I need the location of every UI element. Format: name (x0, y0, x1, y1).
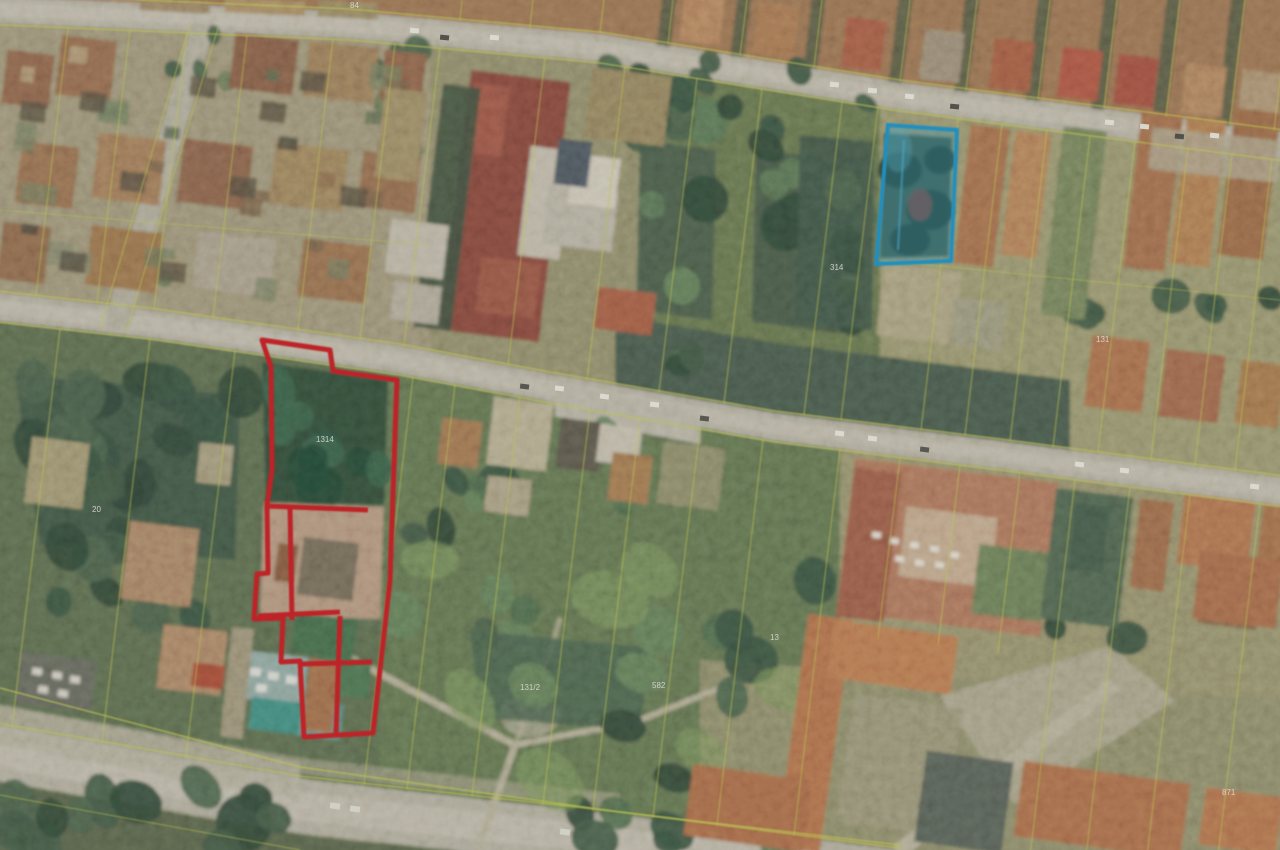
svg-text:13: 13 (770, 633, 779, 642)
svg-text:314: 314 (830, 263, 844, 272)
svg-text:131: 131 (1096, 335, 1110, 344)
svg-text:131/2: 131/2 (520, 683, 541, 692)
svg-text:582: 582 (652, 681, 666, 690)
svg-text:1314: 1314 (316, 435, 334, 444)
svg-text:84: 84 (350, 1, 359, 10)
svg-text:871: 871 (1222, 788, 1236, 797)
svg-text:20: 20 (92, 505, 101, 514)
